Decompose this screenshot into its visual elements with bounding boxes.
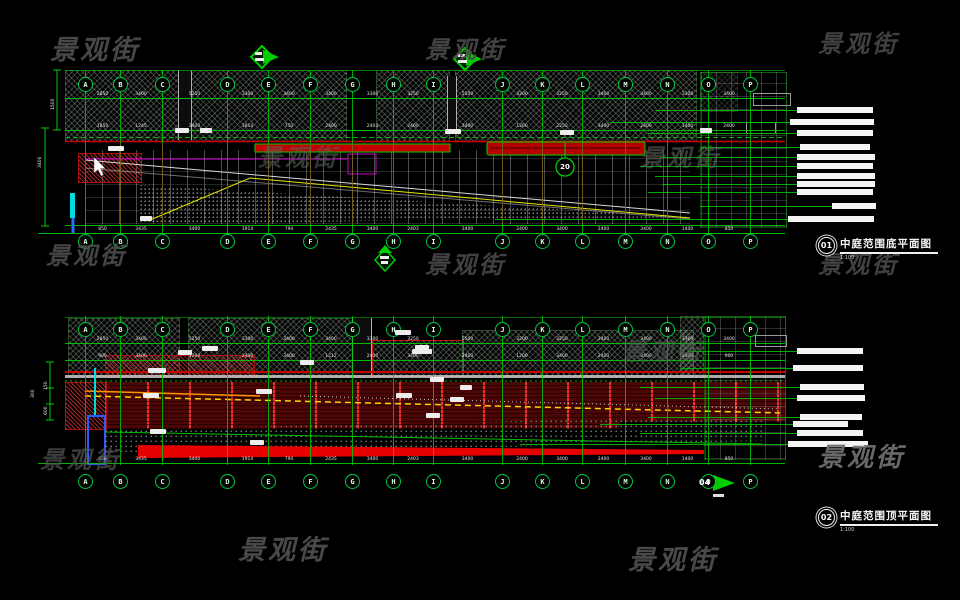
dim-text: 2400 bbox=[513, 457, 531, 462]
callout-leader-line bbox=[680, 368, 793, 369]
dim-text: 3400 bbox=[553, 227, 571, 232]
grid-bubble: O bbox=[701, 234, 716, 249]
grid-bubble: L bbox=[575, 322, 590, 337]
dim-text: 3200 bbox=[513, 337, 531, 342]
dim-text-vertical: 1500 bbox=[51, 99, 56, 110]
callout-leader-line bbox=[640, 433, 797, 434]
grid-bubble: A bbox=[78, 77, 93, 92]
dim-text: 1212 bbox=[322, 354, 340, 359]
dim-text: 900 bbox=[94, 354, 112, 359]
callout-label-bar bbox=[797, 181, 875, 187]
text-blob bbox=[700, 128, 712, 133]
callout-leader-line bbox=[655, 398, 797, 399]
dim-text: 2403 bbox=[404, 457, 422, 462]
dim-text: 2435 bbox=[322, 457, 340, 462]
column-line bbox=[120, 143, 121, 224]
text-blob bbox=[140, 216, 152, 221]
title-text-group: 中庭范围底平面图 1:100 bbox=[840, 236, 938, 261]
dim-text: 3400 bbox=[595, 92, 613, 97]
callout-label-bar bbox=[797, 348, 863, 354]
dim-text: 900 bbox=[720, 354, 738, 359]
dim-text: 850 bbox=[720, 457, 738, 462]
dim-line bbox=[65, 98, 785, 99]
text-blob bbox=[560, 130, 574, 135]
text-blob bbox=[445, 129, 461, 134]
grid-line bbox=[542, 316, 543, 465]
grid-bubble: L bbox=[575, 234, 590, 249]
dim-text: 3250 bbox=[553, 337, 571, 342]
dim-text: 3400 bbox=[459, 124, 477, 129]
grid-bubble: F bbox=[303, 77, 318, 92]
dim-text: 850 bbox=[720, 227, 738, 232]
dim-text-vertical: 300 bbox=[31, 389, 36, 398]
callout-leader-line bbox=[495, 219, 788, 220]
grid-bubble: H bbox=[386, 474, 401, 489]
dim-text: 3435 bbox=[132, 457, 150, 462]
grid-line bbox=[582, 316, 583, 465]
watermark: 景观街 bbox=[46, 236, 127, 271]
dim-text: 3400 bbox=[280, 354, 298, 359]
dim-text: 1914 bbox=[239, 124, 257, 129]
dim-text: 1200 bbox=[513, 354, 531, 359]
callout-leader-line bbox=[640, 387, 800, 388]
watermark: 景观街 bbox=[818, 24, 899, 59]
grid-line bbox=[750, 316, 751, 465]
title-text-group: 中庭范围顶平面图 1:100 bbox=[840, 508, 938, 533]
grid-bubble: M bbox=[618, 77, 633, 92]
grid-bubble: F bbox=[303, 474, 318, 489]
grid-bubble: D bbox=[220, 322, 235, 337]
detail-number-bubble: 02 bbox=[818, 509, 835, 526]
dim-text: 3300 bbox=[364, 92, 382, 97]
dim-text: 3400 bbox=[404, 354, 422, 359]
callout-label-bar bbox=[790, 119, 874, 125]
grid-bubble: C bbox=[155, 234, 170, 249]
dim-text: 1400 bbox=[679, 457, 697, 462]
grid-bubble: B bbox=[113, 322, 128, 337]
text-blob bbox=[200, 128, 212, 133]
watermark: 景观街 bbox=[238, 528, 328, 567]
dim-text-vertical: 3400 bbox=[38, 157, 43, 168]
orange-line bbox=[85, 391, 260, 396]
drawing2-title-block: 02 中庭范围顶平面图 1:100 bbox=[818, 508, 938, 533]
watermark: 景观街 bbox=[640, 138, 721, 173]
dim-text: 2400 bbox=[513, 227, 531, 232]
grid-bubble: I bbox=[426, 474, 441, 489]
grid-bubble: A bbox=[78, 474, 93, 489]
column-line bbox=[625, 143, 626, 224]
dim-text: 3200 bbox=[513, 92, 531, 97]
dim-text: 3400 bbox=[186, 227, 204, 232]
grid-bubble: G bbox=[345, 322, 360, 337]
text-blob bbox=[415, 345, 429, 350]
detail-arrow-sub-label bbox=[713, 494, 724, 497]
dim-text: 2250 bbox=[553, 124, 571, 129]
column-line bbox=[162, 143, 163, 224]
callout-label-bar bbox=[793, 421, 848, 427]
text-blob bbox=[460, 385, 472, 390]
dim-text: 3400 bbox=[459, 227, 477, 232]
dim-text: 3400 bbox=[132, 354, 150, 359]
callout-leader-line bbox=[648, 417, 800, 418]
text-blob bbox=[148, 368, 166, 373]
grid-bubble: G bbox=[345, 234, 360, 249]
grid-bubble: I bbox=[426, 322, 441, 337]
linework-layer bbox=[0, 0, 960, 600]
dim-text: 1200 bbox=[513, 124, 531, 129]
text-blob bbox=[430, 377, 444, 382]
dim-text: 1400 bbox=[679, 124, 697, 129]
grid-bubble: N bbox=[660, 234, 675, 249]
grid-line bbox=[162, 316, 163, 465]
text-blob bbox=[143, 393, 159, 398]
grid-bubble: L bbox=[575, 77, 590, 92]
callout-label-bar bbox=[797, 163, 873, 169]
grid-bubble: K bbox=[535, 234, 550, 249]
dim-text: 3400 bbox=[720, 337, 738, 342]
callout-label-bar bbox=[797, 107, 873, 113]
dim-text: 850 bbox=[94, 227, 112, 232]
grid-bubble: P bbox=[743, 322, 758, 337]
grid-bubble: K bbox=[535, 474, 550, 489]
text-blob bbox=[108, 146, 124, 151]
drawing1-scale: 1:100 bbox=[840, 255, 938, 261]
dim-text: 5500 bbox=[459, 337, 477, 342]
text-blob bbox=[426, 413, 440, 418]
column-line bbox=[227, 143, 228, 224]
dim-text: 3435 bbox=[132, 227, 150, 232]
grid-bubble: D bbox=[220, 234, 235, 249]
grid-bubble: G bbox=[345, 474, 360, 489]
grid-bubble: D bbox=[220, 474, 235, 489]
gray-band bbox=[65, 375, 785, 378]
grid-line bbox=[352, 316, 353, 465]
callout-label-bar bbox=[797, 395, 865, 401]
grid-bubble: J bbox=[495, 322, 510, 337]
column-line bbox=[502, 143, 503, 224]
grid-bubble: D bbox=[220, 77, 235, 92]
grid-bubble: P bbox=[743, 474, 758, 489]
dim-text: 3400 bbox=[364, 227, 382, 232]
dim-text: 1914 bbox=[239, 227, 257, 232]
dim-text: 3250 bbox=[404, 337, 422, 342]
grid-bubble: P bbox=[743, 77, 758, 92]
dim-text-vertical: 150 bbox=[44, 381, 49, 390]
grid-bubble: G bbox=[345, 77, 360, 92]
dim-text: 3400 bbox=[186, 457, 204, 462]
dim-text: 5250 bbox=[186, 337, 204, 342]
dim-text: 1400 bbox=[679, 227, 697, 232]
dim-text: 3300 bbox=[239, 92, 257, 97]
drawing2-title: 中庭范围顶平面图 bbox=[840, 508, 938, 526]
dim-text: 3400 bbox=[720, 92, 738, 97]
callout-label-bar bbox=[797, 173, 875, 179]
text-blob bbox=[256, 389, 272, 394]
dim-text: 3400 bbox=[595, 337, 613, 342]
text-blob bbox=[395, 330, 411, 335]
dim-text: 3400 bbox=[132, 337, 150, 342]
dim-text: 2400 bbox=[595, 457, 613, 462]
text-blob bbox=[250, 440, 264, 445]
grid-bubble: I bbox=[426, 77, 441, 92]
grid-bubble: J bbox=[495, 474, 510, 489]
dim-text: 2400 bbox=[459, 354, 477, 359]
dim-text: 2850 bbox=[94, 92, 112, 97]
grid-bubble: A bbox=[78, 322, 93, 337]
grid-bubble: M bbox=[618, 234, 633, 249]
grid-bubble: K bbox=[535, 322, 550, 337]
grid-bubble: N bbox=[660, 77, 675, 92]
dim-text: 3400 bbox=[132, 92, 150, 97]
dim-text: 750 bbox=[280, 124, 298, 129]
callout-leader-line bbox=[662, 184, 797, 185]
grid-bubble: L bbox=[575, 474, 590, 489]
text-blob bbox=[450, 397, 464, 402]
callout-leader-line bbox=[648, 133, 797, 134]
dim-text: 3250 bbox=[404, 92, 422, 97]
dim-text: 3400 bbox=[322, 92, 340, 97]
dim-text: 3400 bbox=[637, 227, 655, 232]
watermark: 景观街 bbox=[628, 538, 718, 577]
grid-bubble: F bbox=[303, 322, 318, 337]
dim-text: 3400 bbox=[637, 457, 655, 462]
grid-line bbox=[227, 316, 228, 465]
dim-text: 3400 bbox=[322, 337, 340, 342]
dim-text: 5500 bbox=[459, 92, 477, 97]
watermark: 景观街 bbox=[425, 30, 506, 65]
dim-text: 2400 bbox=[637, 124, 655, 129]
dim-text: 2400 bbox=[239, 354, 257, 359]
dim-text: 3400 bbox=[553, 457, 571, 462]
callout-label-bar bbox=[793, 365, 863, 371]
callout-label-bar bbox=[800, 414, 862, 420]
dim-line bbox=[65, 233, 785, 234]
grid-bubble: E bbox=[261, 234, 276, 249]
grid-bubble: B bbox=[113, 77, 128, 92]
watermark: 景观街 bbox=[50, 28, 140, 67]
column-line bbox=[352, 143, 353, 224]
dim-text: 1850 bbox=[94, 124, 112, 129]
dim-text: 3400 bbox=[364, 457, 382, 462]
callout-leader-line bbox=[700, 206, 832, 207]
dim-text: 2400 bbox=[322, 124, 340, 129]
dim-text-vertical: 600 bbox=[44, 406, 49, 415]
dim-text: 1914 bbox=[239, 457, 257, 462]
grid-bubble: B bbox=[113, 474, 128, 489]
dim-text: 2400 bbox=[404, 124, 422, 129]
watermark: 景观街 bbox=[425, 245, 506, 280]
dim-text: 2403 bbox=[404, 227, 422, 232]
grid-bubble: O bbox=[701, 77, 716, 92]
dim-line bbox=[65, 463, 785, 464]
text-blob bbox=[300, 360, 314, 365]
grid-bubble: F bbox=[303, 234, 318, 249]
watermark: 景观街 bbox=[40, 440, 121, 475]
grid-bubble: M bbox=[618, 474, 633, 489]
detail-number-bubble: 01 bbox=[818, 237, 835, 254]
callout-leader-line bbox=[610, 122, 790, 123]
callout-label-bar bbox=[788, 216, 874, 222]
text-blob bbox=[396, 393, 412, 398]
grid-bubble: H bbox=[386, 77, 401, 92]
dim-text: 3300 bbox=[364, 337, 382, 342]
cyan-marker bbox=[70, 193, 75, 218]
grid-line bbox=[750, 70, 751, 234]
dim-text: 794 bbox=[280, 227, 298, 232]
detail-bubble-label: 20 bbox=[557, 163, 573, 171]
callout-label-bar bbox=[797, 430, 863, 436]
grid-bubble: P bbox=[743, 234, 758, 249]
watermark: 景观街 bbox=[818, 437, 905, 474]
grid-bubble: E bbox=[261, 474, 276, 489]
callout-leader-line bbox=[655, 176, 797, 177]
text-blob bbox=[150, 429, 166, 434]
grid-bubble: E bbox=[261, 77, 276, 92]
text-blob bbox=[175, 128, 189, 133]
watermark: 景观街 bbox=[258, 138, 339, 173]
dim-text: 3250 bbox=[553, 92, 571, 97]
dim-text: 5250 bbox=[186, 92, 204, 97]
cad-drawing-canvas: 01 中庭范围底平面图 1:100 02 中庭范围顶平面图 1:100 20 0… bbox=[0, 0, 960, 600]
dim-text: 3400 bbox=[595, 124, 613, 129]
callout-leader-line bbox=[520, 444, 788, 445]
drawing1-title: 中庭范围底平面图 bbox=[840, 236, 938, 254]
grid-bubble: C bbox=[155, 77, 170, 92]
section-marker-icon bbox=[251, 46, 279, 68]
grid-bubble: C bbox=[155, 474, 170, 489]
grid-bubble: O bbox=[701, 322, 716, 337]
detail-arrow-icon bbox=[713, 475, 735, 491]
dim-text: 794 bbox=[280, 457, 298, 462]
callout-label-bar bbox=[832, 203, 876, 209]
callout-label-bar bbox=[800, 384, 864, 390]
dim-text: 2400 bbox=[720, 124, 738, 129]
grid-bubble: E bbox=[261, 322, 276, 337]
column-line bbox=[393, 143, 394, 224]
callout-leader-line bbox=[655, 110, 797, 111]
column-line bbox=[85, 143, 86, 224]
dim-text: 3300 bbox=[679, 92, 697, 97]
drawing2-scale: 1:100 bbox=[840, 527, 938, 533]
grid-bubble: C bbox=[155, 322, 170, 337]
callout-label-bar bbox=[797, 130, 873, 136]
callout-label-bar bbox=[800, 144, 870, 150]
grid-bubble: H bbox=[386, 234, 401, 249]
dim-text: 2400 bbox=[364, 354, 382, 359]
dim-text: 3400 bbox=[280, 92, 298, 97]
dim-text: 1245 bbox=[132, 124, 150, 129]
callout-label-bar bbox=[797, 154, 875, 160]
grid-bubble: K bbox=[535, 77, 550, 92]
dim-text: 2403 bbox=[364, 124, 382, 129]
watermark: 景观街 bbox=[622, 332, 703, 367]
column-line bbox=[542, 143, 543, 224]
callout-leader-line bbox=[600, 424, 793, 425]
grid-bubble: N bbox=[660, 474, 675, 489]
dim-text: 2850 bbox=[94, 337, 112, 342]
callout-label-bar bbox=[797, 189, 873, 195]
grid-line bbox=[708, 316, 709, 465]
dim-text: 3400 bbox=[553, 354, 571, 359]
mouse-cursor-icon bbox=[94, 157, 106, 176]
text-blob bbox=[202, 346, 218, 351]
callout-leader-line bbox=[648, 192, 797, 193]
dim-text: 3400 bbox=[459, 457, 477, 462]
dim-line bbox=[65, 130, 785, 131]
detail-arrow-label: 04 bbox=[699, 478, 710, 487]
grid-line bbox=[393, 316, 394, 465]
grid-line bbox=[502, 316, 503, 465]
dim-text: 3300 bbox=[239, 337, 257, 342]
dim-text: 2400 bbox=[595, 227, 613, 232]
column-line bbox=[433, 143, 434, 224]
grid-line bbox=[310, 316, 311, 465]
dim-text: 2435 bbox=[322, 227, 340, 232]
dim-text: 3400 bbox=[637, 92, 655, 97]
grid-line bbox=[433, 316, 434, 465]
grid-bubble: J bbox=[495, 77, 510, 92]
callout-leader-line bbox=[690, 351, 797, 352]
text-blob bbox=[178, 350, 192, 355]
dim-text: 2400 bbox=[595, 354, 613, 359]
column-line bbox=[582, 143, 583, 224]
dim-text: 3400 bbox=[280, 337, 298, 342]
drawing1-title-block: 01 中庭范围底平面图 1:100 bbox=[818, 236, 938, 261]
